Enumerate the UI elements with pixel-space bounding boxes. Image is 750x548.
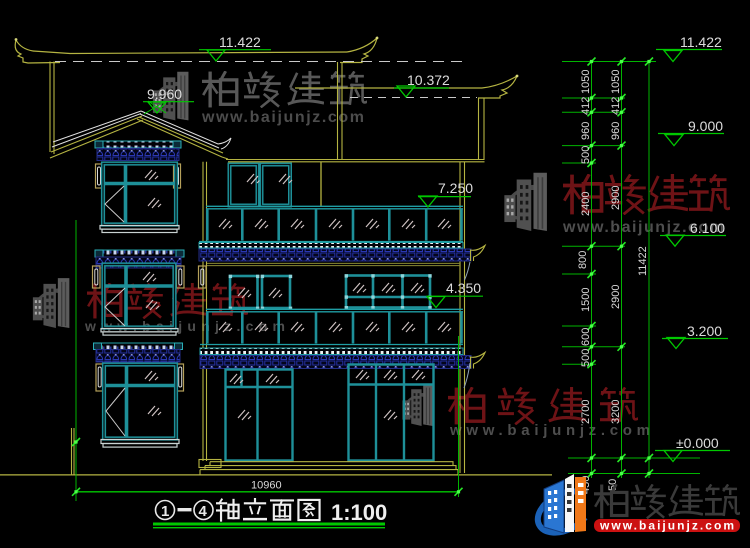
- svg-text:960: 960: [610, 122, 622, 140]
- svg-text:9.000: 9.000: [688, 118, 723, 134]
- svg-text:2900: 2900: [610, 285, 622, 309]
- svg-text:7.250: 7.250: [438, 180, 473, 196]
- svg-text:2900: 2900: [610, 186, 622, 210]
- svg-text:9.960: 9.960: [147, 86, 182, 102]
- svg-text:4.350: 4.350: [446, 280, 481, 296]
- svg-text:11.422: 11.422: [680, 34, 722, 50]
- svg-text:800: 800: [577, 251, 589, 269]
- svg-text:1500: 1500: [580, 288, 592, 312]
- svg-text:2400: 2400: [580, 192, 592, 216]
- svg-text:412: 412: [580, 97, 592, 115]
- svg-text:500: 500: [580, 146, 592, 164]
- svg-text:3.200: 3.200: [687, 323, 722, 339]
- svg-text:6.100: 6.100: [690, 220, 725, 236]
- svg-text:11422: 11422: [637, 246, 649, 276]
- svg-text:11.422: 11.422: [219, 34, 261, 50]
- svg-text:10960: 10960: [251, 480, 282, 492]
- svg-text:4: 4: [199, 503, 208, 520]
- svg-text:1050: 1050: [610, 70, 622, 94]
- svg-text:600: 600: [580, 328, 592, 346]
- svg-text:1: 1: [161, 503, 169, 520]
- svg-text:1:100: 1:100: [331, 500, 387, 525]
- svg-text:2700: 2700: [580, 400, 592, 424]
- svg-text:960: 960: [580, 122, 592, 140]
- svg-text:3200: 3200: [610, 400, 622, 424]
- svg-text:±0.000: ±0.000: [676, 435, 719, 451]
- svg-text:1050: 1050: [580, 70, 592, 94]
- svg-text:500: 500: [580, 349, 592, 367]
- svg-text:412: 412: [610, 97, 622, 115]
